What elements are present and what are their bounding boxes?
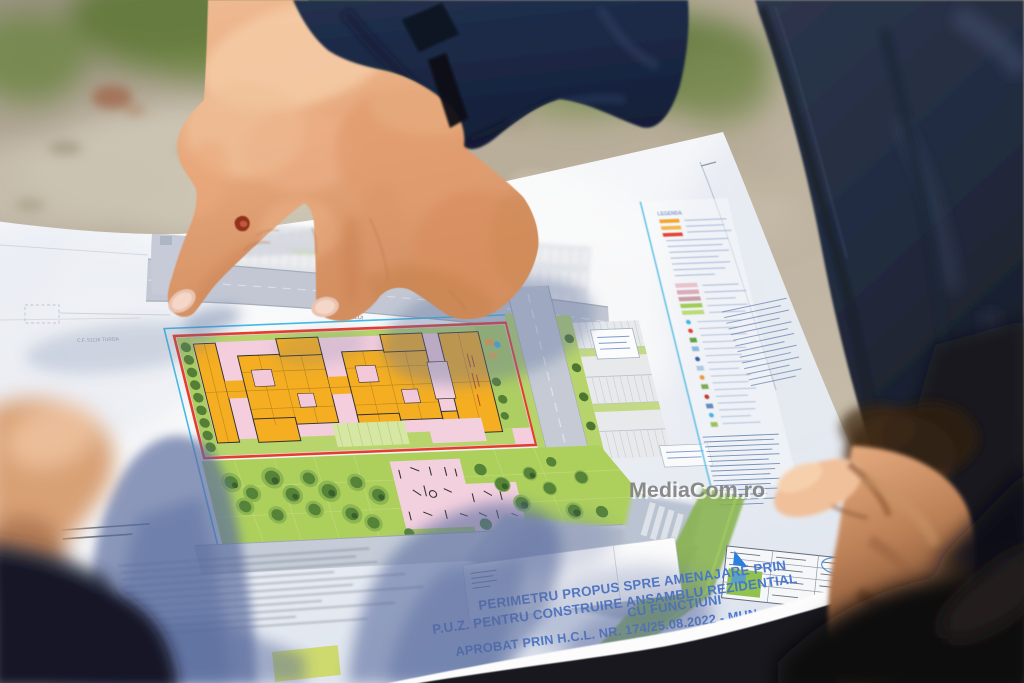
svg-text:MediaCom.ro: MediaCom.ro [629, 478, 765, 502]
